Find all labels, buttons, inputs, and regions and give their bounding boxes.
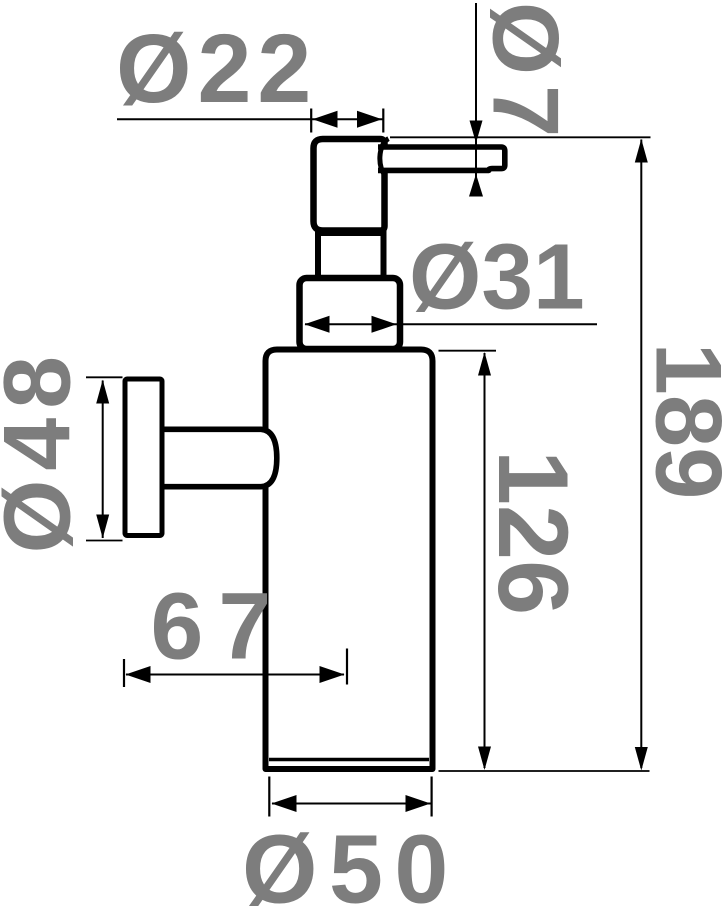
svg-text:Ø7: Ø7: [474, 2, 579, 147]
svg-text:Ø48: Ø48: [0, 347, 91, 554]
svg-text:67: 67: [151, 574, 287, 680]
svg-text:189: 189: [637, 343, 726, 500]
svg-text:Ø22: Ø22: [116, 14, 317, 123]
svg-text:Ø31: Ø31: [409, 225, 585, 329]
svg-text:126: 126: [478, 450, 589, 615]
svg-text:Ø50: Ø50: [242, 815, 460, 907]
